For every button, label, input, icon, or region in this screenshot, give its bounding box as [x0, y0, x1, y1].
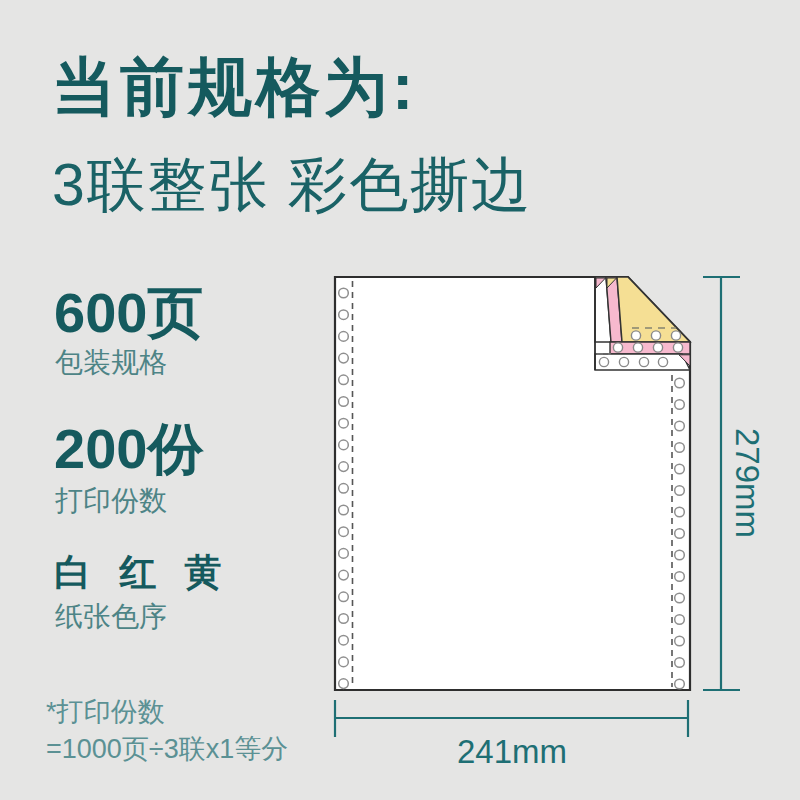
paper-diagram: 279mm 241mm	[0, 0, 800, 800]
height-dimension-label: 279mm	[729, 428, 766, 538]
tractor-holes-right	[675, 378, 685, 689]
width-dimension	[335, 700, 688, 737]
product-spec-page: { "header": { "title": "当前规格为:", "subtit…	[0, 0, 800, 800]
width-dimension-label: 241mm	[457, 733, 567, 770]
yellow-feed-holes	[631, 331, 680, 340]
